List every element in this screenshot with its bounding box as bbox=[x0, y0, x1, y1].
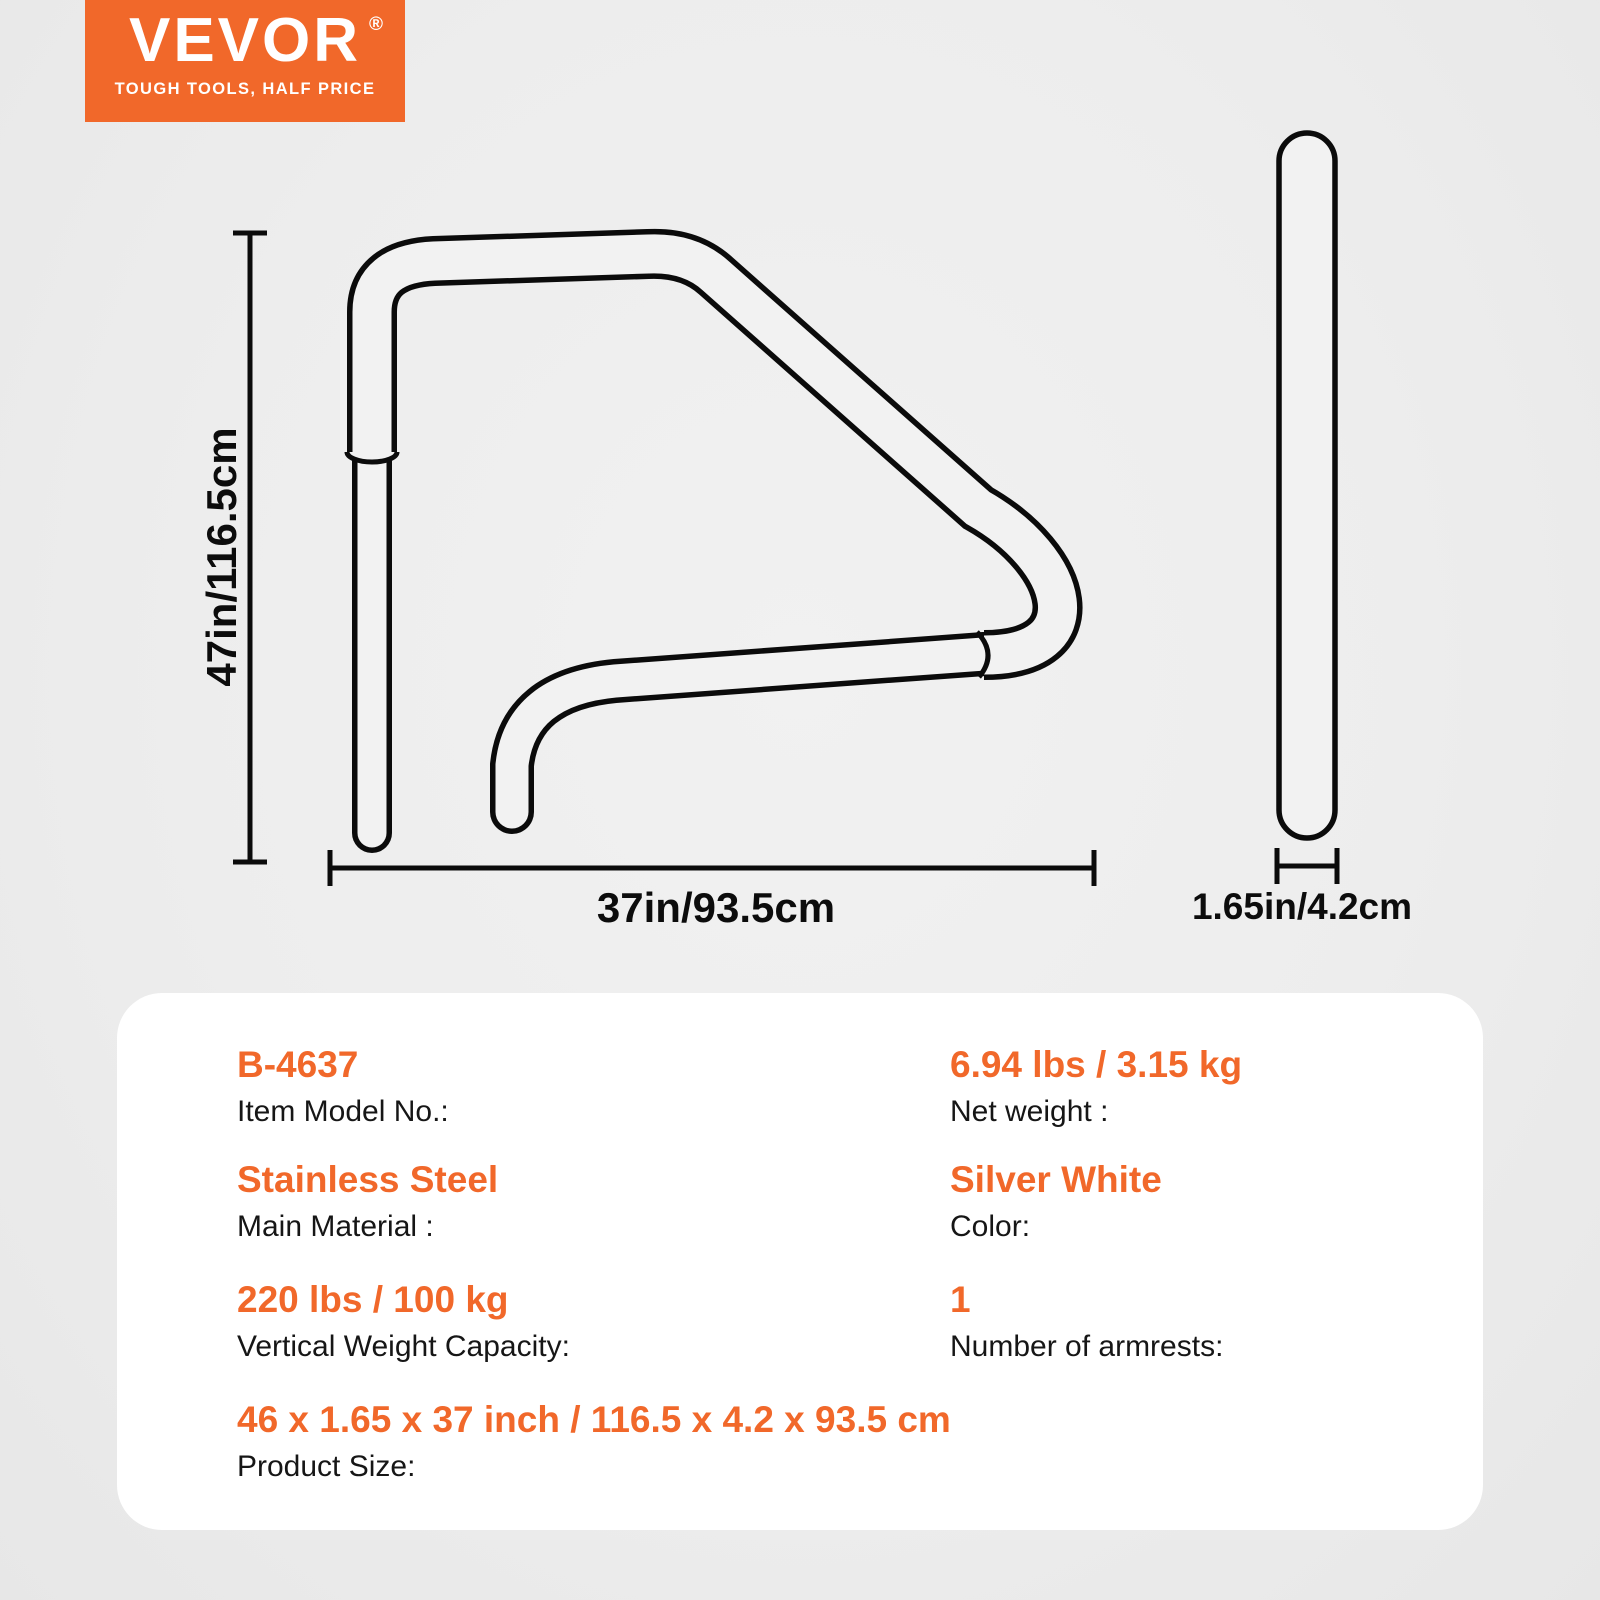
spec-panel: B-4637 Item Model No.: 6.94 lbs / 3.15 k… bbox=[117, 993, 1483, 1530]
spec-item-capacity: 220 lbs / 100 kg Vertical Weight Capacit… bbox=[237, 1280, 570, 1364]
sleeve-joint-line bbox=[347, 452, 397, 462]
spec-label: Color: bbox=[950, 1210, 1162, 1244]
side-view-tube bbox=[1279, 133, 1335, 838]
side-dimension-label: 1.65in/4.2cm bbox=[1192, 886, 1412, 928]
spec-item-product-size: 46 x 1.65 x 37 inch / 116.5 x 4.2 x 93.5… bbox=[237, 1400, 951, 1484]
spec-label: Main Material : bbox=[237, 1210, 498, 1244]
spec-value: 1 bbox=[950, 1280, 1223, 1320]
spec-label: Product Size: bbox=[237, 1450, 951, 1484]
width-dimension-label: 37in/93.5cm bbox=[597, 884, 835, 932]
side-dimension-line bbox=[1277, 848, 1337, 884]
spec-item-model: B-4637 Item Model No.: bbox=[237, 1045, 449, 1129]
front-view-lower-rail bbox=[512, 654, 984, 812]
spec-value: Silver White bbox=[950, 1160, 1162, 1200]
spec-item-net-weight: 6.94 lbs / 3.15 kg Net weight : bbox=[950, 1045, 1242, 1129]
spec-value: 220 lbs / 100 kg bbox=[237, 1280, 570, 1320]
spec-item-color: Silver White Color: bbox=[950, 1160, 1162, 1244]
spec-item-material: Stainless Steel Main Material : bbox=[237, 1160, 498, 1244]
spec-value: 46 x 1.65 x 37 inch / 116.5 x 4.2 x 93.5… bbox=[237, 1400, 951, 1440]
width-dimension-line bbox=[330, 850, 1094, 886]
spec-label: Net weight : bbox=[950, 1095, 1242, 1129]
spec-label: Item Model No.: bbox=[237, 1095, 449, 1129]
spec-label: Number of armrests: bbox=[950, 1330, 1223, 1364]
front-view-main-tube bbox=[372, 254, 1058, 655]
spec-value: Stainless Steel bbox=[237, 1160, 498, 1200]
spec-item-armrests: 1 Number of armrests: bbox=[950, 1280, 1223, 1364]
spec-value: 6.94 lbs / 3.15 kg bbox=[950, 1045, 1242, 1085]
spec-label: Vertical Weight Capacity: bbox=[237, 1330, 570, 1364]
height-dimension-label: 47in/116.5cm bbox=[198, 427, 246, 686]
spec-value: B-4637 bbox=[237, 1045, 449, 1085]
